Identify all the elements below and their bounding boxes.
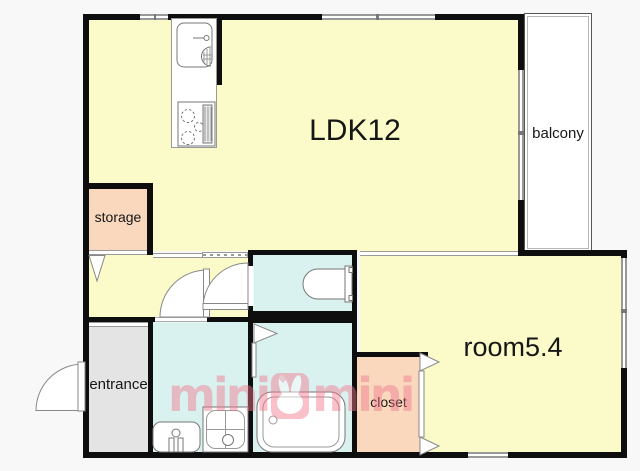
wall-bathroom-right (352, 250, 357, 452)
storage-label: storage (89, 210, 147, 225)
wall-bottom (83, 452, 627, 458)
wall-balcony-bottom (524, 250, 627, 256)
wall-storage-top (83, 183, 153, 189)
ldk-room-partition (360, 251, 518, 256)
wall-toilet-top (248, 250, 357, 255)
bathroom (253, 323, 352, 452)
ldk-label: LDK12 (280, 114, 430, 147)
ldk-hallway-sliding-door (202, 252, 248, 258)
toilet-room (253, 255, 352, 311)
window-mullion (621, 309, 627, 313)
kitchen-counter (171, 18, 217, 148)
window-mullion (376, 14, 379, 20)
balcony-label: balcony (524, 126, 592, 143)
window-icon-bottom (468, 452, 508, 458)
ldk-hallway-opening (153, 253, 202, 258)
wall-toilet-left (248, 250, 253, 317)
storage-door-track (89, 250, 147, 255)
window-mullion (154, 14, 156, 20)
wall-washroom-bathroom (248, 317, 253, 452)
entrance-step (89, 322, 148, 327)
hallway (89, 253, 248, 317)
room-label: room5.4 (428, 333, 598, 363)
closet-label: closet (357, 395, 420, 410)
window-icon-room-right (621, 258, 627, 368)
washroom (153, 322, 248, 452)
wall-closet-top (352, 352, 428, 357)
entrance-door-swing-icon (36, 362, 85, 411)
entrance-label: entrance (88, 377, 149, 394)
wall-storage-right (147, 183, 153, 255)
wall-toilet-bathroom (253, 311, 357, 323)
floor-plan: LDK12 room5.4 balcony storage entrance c… (0, 0, 640, 471)
